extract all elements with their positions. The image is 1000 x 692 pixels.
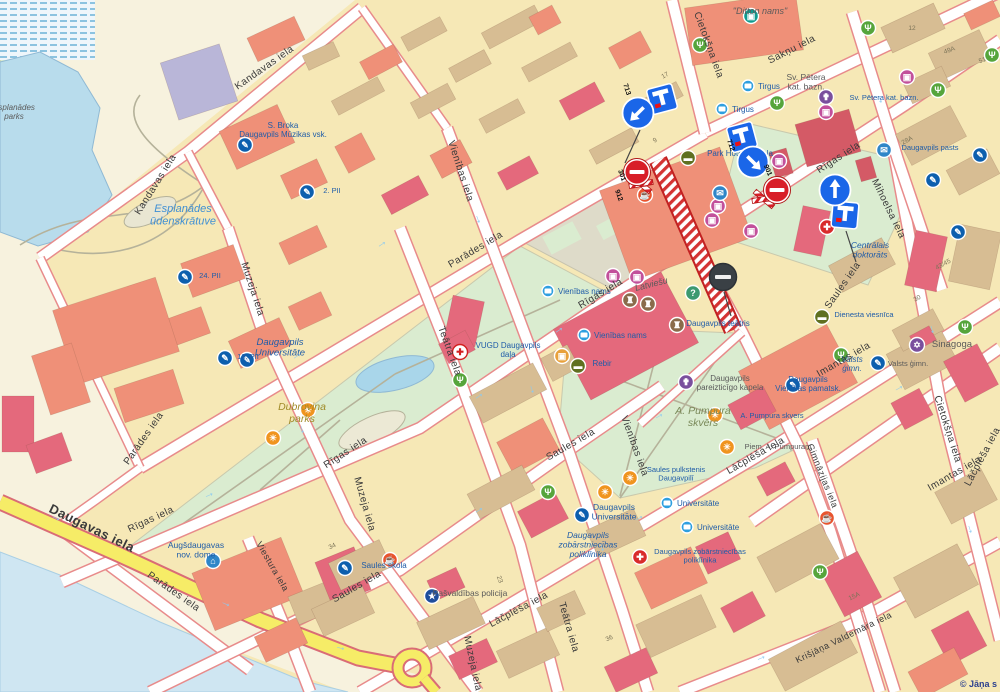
market-icon[interactable]: ▣ [555,349,570,364]
restaurant-icon-glyph: Ψ [544,487,551,497]
school-icon[interactable]: ✎ [871,356,886,371]
school-icon-glyph: ✎ [929,175,937,185]
bus-stop[interactable]: Vienības nams [578,329,647,341]
restaurant-icon[interactable]: Ψ [541,485,556,500]
culture-icon[interactable]: ♜ [623,293,638,308]
post-icon[interactable]: ✉ [713,186,728,201]
no-entry-bar [630,170,645,174]
bus-icon [545,289,552,294]
market-icon-glyph: ▣ [558,351,567,361]
synagogue-icon[interactable]: ✡ [910,338,925,353]
no-entry-sign[interactable] [764,177,791,204]
post-icon-glyph: ✉ [880,145,888,155]
school-icon[interactable]: ✎ [338,561,353,576]
theatre-icon-glyph: ♜ [673,320,681,330]
bus-icon [581,333,588,338]
culture-icon-glyph: ♜ [644,299,652,309]
school-icon-glyph: ✎ [976,150,984,160]
no-entry-sign[interactable] [624,159,651,186]
no-entry-bar [770,188,785,192]
post-icon[interactable]: ✉ [877,143,892,158]
school-icon[interactable]: ✎ [926,173,941,188]
kindergarten-label: 24. PII [199,271,221,280]
cafe-icon[interactable]: ☕ [820,511,835,526]
map-canvas[interactable]: →→→→→→→→→→→→→→→→→→→→ 1791249A5143/453034… [0,0,1000,692]
shop-icon[interactable]: ▣ [772,154,787,169]
inactive-no-entry-sign[interactable] [710,264,737,291]
hotel-icon-glyph: ▬ [684,153,693,163]
school-icon[interactable]: ✎ [951,225,966,240]
school-icon[interactable]: ✎ [300,185,315,200]
theatre-label: Daugavpils teātris [686,319,750,328]
kindergarten-icon-glyph: ✎ [181,272,189,282]
church-icon[interactable]: ✟ [819,90,834,105]
bus-stop-label: Vienības nams [594,331,647,340]
pharmacy-icon-glyph: ✚ [823,222,831,232]
water-label: Esplanādesūdenskrātuve [150,203,216,227]
chapel-icon-glyph: ✟ [682,377,690,387]
shop-icon[interactable]: ▣ [900,70,915,85]
kindergarten-icon[interactable]: ✎ [178,270,193,285]
bus-icon [684,525,691,530]
restaurant-icon[interactable]: Ψ [813,565,828,580]
shop-icon[interactable]: ▣ [744,224,759,239]
kindergarten-icon-glyph: ✎ [221,353,229,363]
restaurant-icon[interactable]: Ψ [985,48,1000,63]
school-icon-glyph: ✎ [303,187,311,197]
bus-icon [719,107,726,112]
school-icon-glyph: ✎ [874,358,882,368]
hotel-icon-glyph: ▬ [818,312,827,322]
hostel-label: Dienesta viesnīca [834,310,894,319]
school-label: Saules skola [361,561,407,570]
one-way-sign[interactable] [738,147,769,178]
info-icon-glyph: ? [690,288,696,298]
school-icon-glyph: ✎ [341,563,349,573]
dead-end-red-mark [836,218,842,222]
sundial-icon-glyph: ☀ [626,473,634,483]
culture-icon[interactable]: ♜ [641,297,656,312]
monument-icon[interactable]: ✳ [720,440,735,455]
restaurant-icon[interactable]: Ψ [958,320,973,335]
one-way-arrow [833,186,837,198]
shop-icon-glyph: ▣ [708,215,717,225]
university-icon-glyph: ✎ [578,510,586,520]
synagogue-icon-glyph: ✡ [913,340,921,350]
kindergarten-icon[interactable]: ✎ [218,351,233,366]
bus-stop[interactable]: Universitāte [681,521,740,533]
bus-stop[interactable]: Universitāte [661,497,720,509]
house-number: 12 [908,25,916,32]
hotel-icon[interactable]: ▬ [571,359,586,374]
bus-stop-label: Tirgus [732,105,754,114]
bus-icon [664,501,671,506]
chapel-icon[interactable]: ✟ [679,375,694,390]
no-entry-bar [715,275,731,279]
police-label: Pašvaldības policija [433,588,508,598]
restaurant-icon-glyph: Ψ [864,23,871,33]
restaurant-icon-glyph: Ψ [456,375,463,385]
attribution: © Jāņa s [960,679,997,689]
playground-icon[interactable]: ☀ [266,431,281,446]
post-icon-glyph: ✉ [716,188,724,198]
restaurant-icon-glyph: Ψ [988,50,995,60]
shop-icon-glyph: ▣ [714,201,723,211]
culture-icon-glyph: ♜ [626,295,634,305]
info-icon[interactable]: ? [686,286,701,301]
bus-stop-label: Tirgus [758,82,780,91]
kindergarten-label: 2. PII [323,186,341,195]
marsh-area [0,0,95,60]
church-icon-glyph: ✟ [822,92,830,102]
restaurant-icon-glyph: Ψ [961,322,968,332]
university-label: DaugavpilsUniversitāte [592,502,637,522]
bus-stop-label: Universitāte [677,499,720,508]
post-label: Daugavpils pasts [901,143,958,152]
doctorate-label: Centrālaisdoktorāts [851,240,890,260]
medical-icon-glyph: ✚ [636,552,644,562]
hotel-icon[interactable]: ▬ [815,310,830,325]
building [2,396,34,452]
one-way-sign[interactable] [820,175,851,206]
bus-stop[interactable]: Tirgus [716,103,754,115]
restaurant-icon[interactable]: Ψ [770,96,785,111]
school-icon-glyph: ✎ [954,227,962,237]
restaurant-icon[interactable]: Ψ [931,83,946,98]
bus-icon [745,84,752,89]
shop-icon-glyph: ▣ [822,107,831,117]
restaurant-icon-glyph: Ψ [816,567,823,577]
mall-label: "Ditton nams" [733,6,788,16]
school-icon[interactable]: ✎ [973,148,988,163]
hotel-icon-glyph: ▬ [574,361,583,371]
restaurant-icon-glyph: Ψ [934,85,941,95]
cafe-icon-glyph: ☕ [821,512,832,523]
shop-icon[interactable]: ▣ [819,105,834,120]
church-label: Sv. Pētera kat. bazn. [849,93,918,102]
sundial-icon[interactable]: ☀ [598,485,613,500]
kindergarten-label: 18. PII [237,352,259,361]
sundial-icon-glyph: ☀ [601,487,609,497]
medical-icon[interactable]: ✚ [633,550,648,565]
synagogue-label: Sinagoga [932,339,973,350]
shop-icon[interactable]: ▣ [705,213,720,228]
one-way-sign[interactable] [623,98,654,129]
shop-icon-glyph: ▣ [775,156,784,166]
bus-stop[interactable]: Tirgus [742,80,780,92]
university-label: DaugavpilsUniversitāte [255,337,305,359]
restaurant-icon-glyph: Ψ [773,98,780,108]
hotel-label: Rebir [592,359,611,368]
shop-icon-glyph: ▣ [903,72,912,82]
theatre-icon[interactable]: ♜ [670,318,685,333]
monument-icon-glyph: ✳ [723,442,731,452]
hotel-icon[interactable]: ▬ [681,151,696,166]
school-icon-glyph: ✎ [241,140,249,150]
bus-stop-label: Universitāte [697,523,740,532]
map-svg[interactable]: →→→→→→→→→→→→→→→→→→→→ 1791249A5143/453034… [0,0,1000,692]
playground-icon-glyph: ☀ [269,433,277,443]
park-poi-label: A. Pumpura skvers [740,411,804,420]
sundial-icon[interactable]: ☀ [623,471,638,486]
school-icon[interactable]: ✎ [238,138,253,153]
shop-icon-glyph: ▣ [633,272,642,282]
gymnasium-label: Valsts ģimn. [888,359,928,368]
shop-icon-glyph: ▣ [747,226,756,236]
restaurant-icon[interactable]: Ψ [861,21,876,36]
university-icon[interactable]: ✎ [575,508,590,523]
church-label: Sv. Pēterakat. bazn. [786,72,825,92]
